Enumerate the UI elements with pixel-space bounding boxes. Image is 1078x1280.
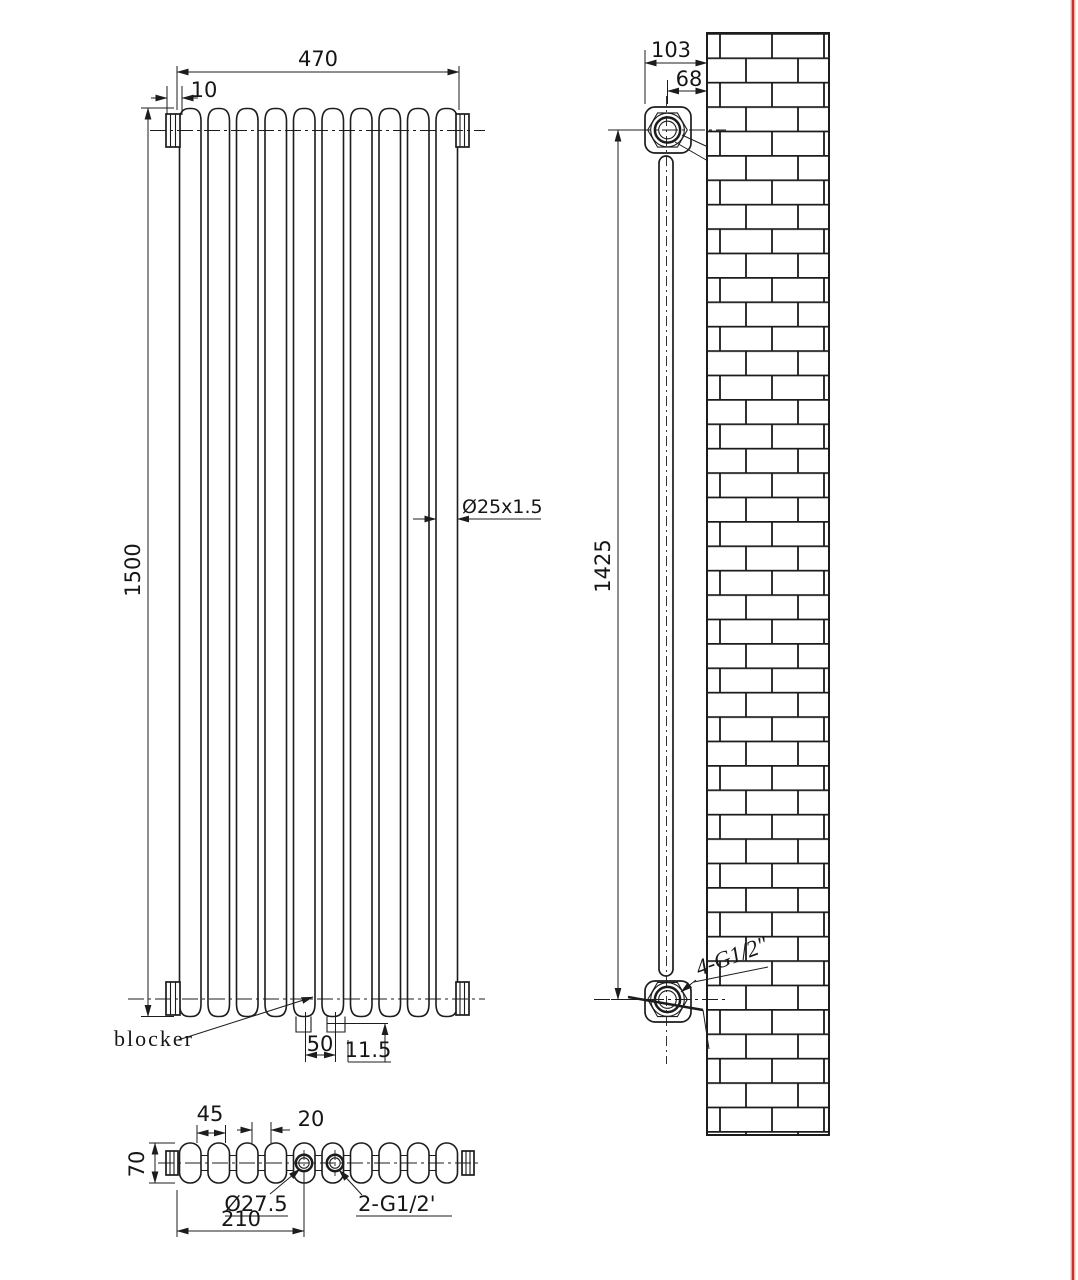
dim-top-depth: 70 xyxy=(125,1151,149,1178)
page-background xyxy=(0,0,1078,1280)
dim-hole-offset: 20 xyxy=(298,1107,325,1131)
label-top-connections: 2-G1/2' xyxy=(358,1192,436,1216)
dim-front-height: 1500 xyxy=(121,543,145,596)
dim-side-depth: 103 xyxy=(651,38,691,62)
dim-front-cap: 10 xyxy=(191,78,218,102)
dim-foot-spacing: 50 xyxy=(307,1032,334,1056)
scan-border-red xyxy=(1071,0,1076,1280)
dim-connection-height: 1425 xyxy=(591,539,615,592)
dim-section-pitch: 45 xyxy=(197,1102,224,1126)
radiator-technical-drawing: 470 10 1500 Ø25x1.5 blocker 50 11.5 103 xyxy=(0,0,1078,1280)
dim-foot-offset: 11.5 xyxy=(345,1038,392,1062)
drawing-page: 470 10 1500 Ø25x1.5 blocker 50 11.5 103 xyxy=(0,0,1078,1280)
dim-hole-distance: 210 xyxy=(221,1207,261,1231)
dim-wall-to-center: 68 xyxy=(676,67,703,91)
dim-front-width: 470 xyxy=(298,47,338,71)
dim-tube-size: Ø25x1.5 xyxy=(462,496,543,518)
